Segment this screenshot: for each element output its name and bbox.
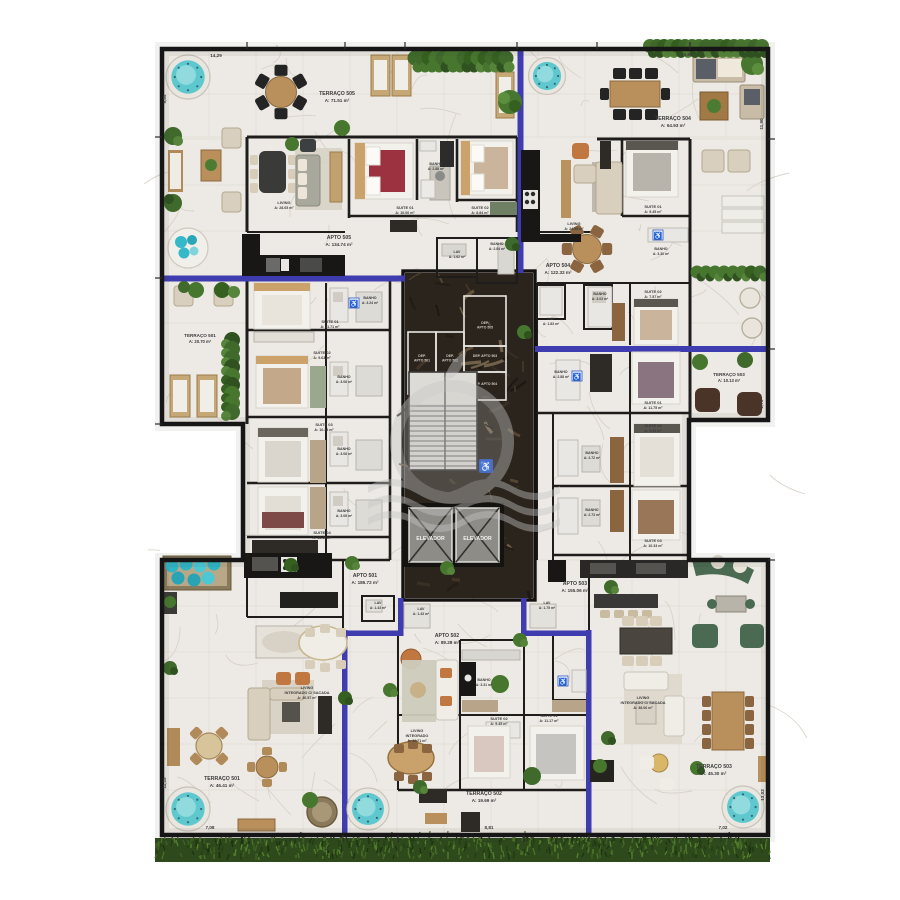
svg-text:TERRAÇO 501: TERRAÇO 501 (204, 776, 240, 782)
svg-text:A: 3.08 m²: A: 3.08 m² (336, 452, 353, 456)
svg-text:A: 122.32 m²: A: 122.32 m² (544, 270, 572, 275)
svg-text:LAV: LAV (548, 317, 556, 321)
svg-text:2,73: 2,73 (759, 399, 764, 408)
svg-text:A: 2.88 m²: A: 2.88 m² (428, 167, 445, 171)
svg-text:APTO 502: APTO 502 (435, 633, 460, 639)
svg-text:♿: ♿ (573, 372, 582, 381)
svg-text:SUITE 01: SUITE 01 (396, 205, 414, 210)
svg-text:LAV: LAV (418, 607, 426, 611)
svg-text:A: 3.24 m²: A: 3.24 m² (362, 301, 379, 305)
svg-text:A: 2.73 m²: A: 2.73 m² (584, 513, 601, 517)
svg-text:A: 1.83 m²: A: 1.83 m² (543, 322, 560, 326)
svg-text:LIVING: LIVING (411, 729, 424, 733)
svg-text:DEP.: DEP. (446, 354, 454, 358)
svg-text:13,02: 13,02 (760, 789, 765, 801)
svg-text:A: 3.08 m²: A: 3.08 m² (336, 514, 353, 518)
svg-text:A: 155.06 m²: A: 155.06 m² (561, 588, 589, 593)
svg-text:BANHO: BANHO (337, 447, 350, 451)
svg-text:APTO 501: APTO 501 (414, 359, 430, 363)
svg-text:TERRAÇO 503: TERRAÇO 503 (713, 372, 745, 377)
svg-text:DEP.: DEP. (418, 354, 426, 358)
svg-text:11,90: 11,90 (759, 118, 764, 130)
svg-text:LAV: LAV (544, 601, 552, 605)
svg-text:A: 19.69 m²: A: 19.69 m² (472, 798, 497, 803)
svg-text:♿: ♿ (350, 299, 359, 308)
svg-text:A: 3.30 m²: A: 3.30 m² (653, 252, 670, 256)
svg-text:A: 10.10 m²: A: 10.10 m² (312, 536, 332, 540)
svg-text:BANHO: BANHO (593, 292, 606, 296)
svg-text:ELEVADOR: ELEVADOR (463, 536, 492, 542)
svg-text:LIVING: LIVING (277, 200, 290, 205)
svg-text:7,02: 7,02 (719, 825, 728, 830)
svg-text:A: 8.84 m²: A: 8.84 m² (471, 211, 489, 215)
svg-text:A: 46.41 m²: A: 46.41 m² (210, 783, 235, 788)
svg-text:A: 9.45 m²: A: 9.45 m² (490, 722, 508, 726)
svg-text:A: 64.93 m²: A: 64.93 m² (661, 123, 686, 128)
svg-text:SUITE 04: SUITE 04 (313, 530, 331, 535)
svg-text:APTO 503: APTO 503 (563, 581, 588, 587)
svg-text:INTEGRADO C/ SACADA: INTEGRADO C/ SACADA (285, 691, 330, 695)
svg-text:A: 2.84 m²: A: 2.84 m² (489, 247, 506, 251)
svg-text:♿: ♿ (654, 231, 663, 240)
svg-text:A: 3.03 m²: A: 3.03 m² (592, 297, 609, 301)
svg-text:A: 10.33 m²: A: 10.33 m² (314, 428, 334, 432)
svg-text:14,29: 14,29 (210, 53, 222, 58)
svg-text:TERRAÇO 505: TERRAÇO 505 (319, 91, 355, 97)
svg-text:A: 2.88 m²: A: 2.88 m² (553, 375, 570, 379)
svg-text:INTEGRADO: INTEGRADO (406, 734, 429, 738)
svg-text:A: 3.31 m²: A: 3.31 m² (476, 683, 493, 687)
svg-text:9,85: 9,85 (162, 94, 167, 103)
svg-text:SUITE 01: SUITE 01 (644, 204, 662, 209)
svg-text:SUITE 02: SUITE 02 (313, 350, 331, 355)
svg-text:SUITE 01: SUITE 01 (644, 400, 662, 405)
svg-text:A: 186.72 m²: A: 186.72 m² (351, 580, 379, 585)
svg-text:APTO 505: APTO 505 (327, 235, 352, 241)
svg-text:A: 10.33 m²: A: 10.33 m² (643, 544, 663, 548)
svg-text:BANHO: BANHO (363, 296, 376, 300)
svg-text:APTO 505: APTO 505 (477, 326, 493, 330)
svg-text:A: 89.28 m²: A: 89.28 m² (435, 640, 460, 645)
svg-text:BANHO: BANHO (585, 508, 598, 512)
svg-text:TERRAÇO 502: TERRAÇO 502 (466, 791, 502, 797)
svg-text:SUITE 02: SUITE 02 (644, 423, 662, 428)
svg-text:9,88: 9,88 (684, 52, 693, 57)
svg-text:INTEGRADO C/ SACADA: INTEGRADO C/ SACADA (621, 701, 666, 705)
svg-text:A: 45.30 m²: A: 45.30 m² (702, 771, 727, 776)
svg-text:LIVING: LIVING (637, 696, 650, 700)
svg-text:BANHO: BANHO (337, 375, 350, 379)
svg-text:APTO 504: APTO 504 (546, 263, 571, 269)
svg-text:A: 28.65 m²: A: 28.65 m² (274, 206, 294, 210)
svg-text:A: 10.13 m²: A: 10.13 m² (718, 378, 741, 383)
svg-text:TERRAÇO 504: TERRAÇO 504 (655, 116, 691, 122)
svg-text:SUITE 02: SUITE 02 (644, 289, 662, 294)
svg-text:SUITE 01: SUITE 01 (321, 319, 339, 324)
svg-text:A: 134.74 m²: A: 134.74 m² (325, 242, 353, 247)
svg-text:A: 11.71 m²: A: 11.71 m² (321, 325, 341, 329)
svg-text:A: 11.75 m²: A: 11.75 m² (644, 406, 664, 410)
svg-text:7,08: 7,08 (206, 825, 215, 830)
svg-text:A: 11.17 m²: A: 11.17 m² (540, 719, 560, 723)
svg-text:A: 24.59 m²: A: 24.59 m² (564, 227, 584, 231)
svg-text:BANHO: BANHO (477, 678, 490, 682)
svg-text:A: 38.06 m²: A: 38.06 m² (633, 706, 653, 710)
svg-text:A: 71.51 m²: A: 71.51 m² (325, 98, 350, 103)
svg-text:A: 36.57 m²: A: 36.57 m² (297, 696, 317, 700)
svg-text:DEP. APTO 503: DEP. APTO 503 (473, 354, 497, 358)
svg-text:LAV: LAV (375, 601, 383, 605)
svg-text:BANHO: BANHO (429, 162, 442, 166)
svg-text:BANHO: BANHO (654, 247, 667, 251)
svg-text:A: 2.72 m²: A: 2.72 m² (584, 456, 601, 460)
svg-text:LIVING: LIVING (567, 221, 580, 226)
svg-text:A: 1.43 m²: A: 1.43 m² (413, 612, 430, 616)
svg-text:A: 9.63 m²: A: 9.63 m² (313, 356, 331, 360)
svg-text:♿: ♿ (559, 677, 568, 686)
svg-text:A: 9.43 m²: A: 9.43 m² (644, 429, 662, 433)
svg-text:BANHO: BANHO (490, 242, 503, 246)
svg-text:DEP.: DEP. (481, 321, 489, 325)
svg-text:BANHO: BANHO (585, 451, 598, 455)
svg-text:SUITE 03: SUITE 03 (315, 422, 333, 427)
svg-text:SUITE 01: SUITE 01 (540, 713, 558, 718)
svg-text:A: 10.00 m²: A: 10.00 m² (395, 211, 415, 215)
svg-text:BANHO: BANHO (337, 509, 350, 513)
svg-text:A: 32.71 m²: A: 32.71 m² (407, 739, 427, 743)
svg-text:SUITE 02: SUITE 02 (471, 205, 489, 210)
svg-text:SUITE 02: SUITE 02 (490, 716, 508, 721)
svg-text:A: 1.62 m²: A: 1.62 m² (449, 255, 466, 259)
svg-text:A: 7.57 m²: A: 7.57 m² (644, 295, 662, 299)
svg-text:LAV: LAV (454, 250, 462, 254)
svg-text:A: 9.45 m²: A: 9.45 m² (644, 210, 662, 214)
svg-text:LIVING: LIVING (301, 686, 314, 690)
svg-text:A: 1.43 m²: A: 1.43 m² (370, 606, 387, 610)
svg-text:11,15: 11,15 (162, 777, 167, 789)
svg-text:ELEVADOR: ELEVADOR (416, 536, 445, 542)
svg-text:BANHO: BANHO (554, 370, 567, 374)
svg-text:APTO 501: APTO 501 (353, 573, 378, 579)
svg-text:A: 1.75 m²: A: 1.75 m² (539, 606, 556, 610)
svg-text:A: 20.70 m²: A: 20.70 m² (189, 339, 212, 344)
svg-text:TERRAÇO 503: TERRAÇO 503 (696, 764, 732, 770)
svg-text:8,81: 8,81 (485, 825, 494, 830)
svg-text:A: 3.08 m²: A: 3.08 m² (336, 380, 353, 384)
svg-text:SUITE 03: SUITE 03 (644, 538, 662, 543)
svg-text:TERRAÇO 501: TERRAÇO 501 (184, 333, 216, 338)
